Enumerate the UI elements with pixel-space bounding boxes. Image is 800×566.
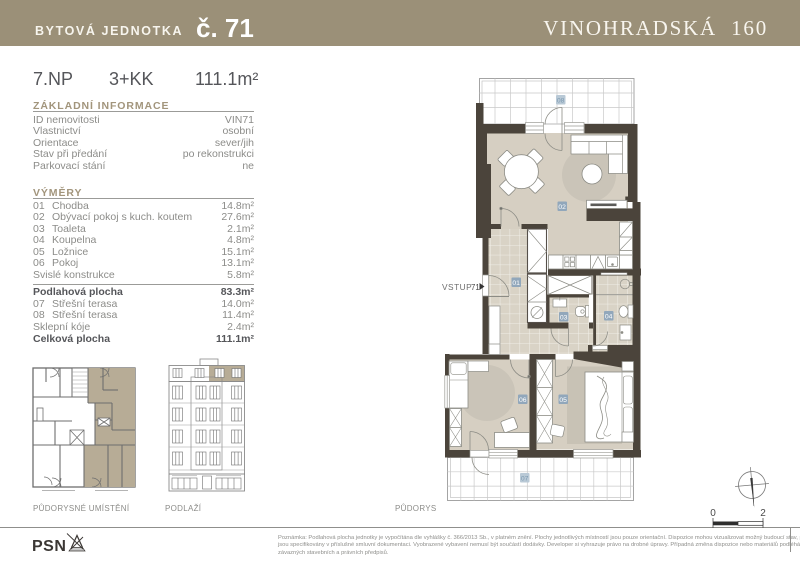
svg-text:VSTUP: VSTUP <box>442 282 472 292</box>
svg-text:06: 06 <box>519 397 527 404</box>
svg-text:01: 01 <box>512 280 520 287</box>
svg-text:07: 07 <box>521 475 529 482</box>
svg-text:71: 71 <box>471 283 480 292</box>
svg-text:02: 02 <box>558 204 566 211</box>
svg-text:03: 03 <box>560 314 568 321</box>
svg-text:05: 05 <box>559 397 567 404</box>
svg-text:08: 08 <box>557 97 565 104</box>
svg-text:04: 04 <box>605 313 613 320</box>
